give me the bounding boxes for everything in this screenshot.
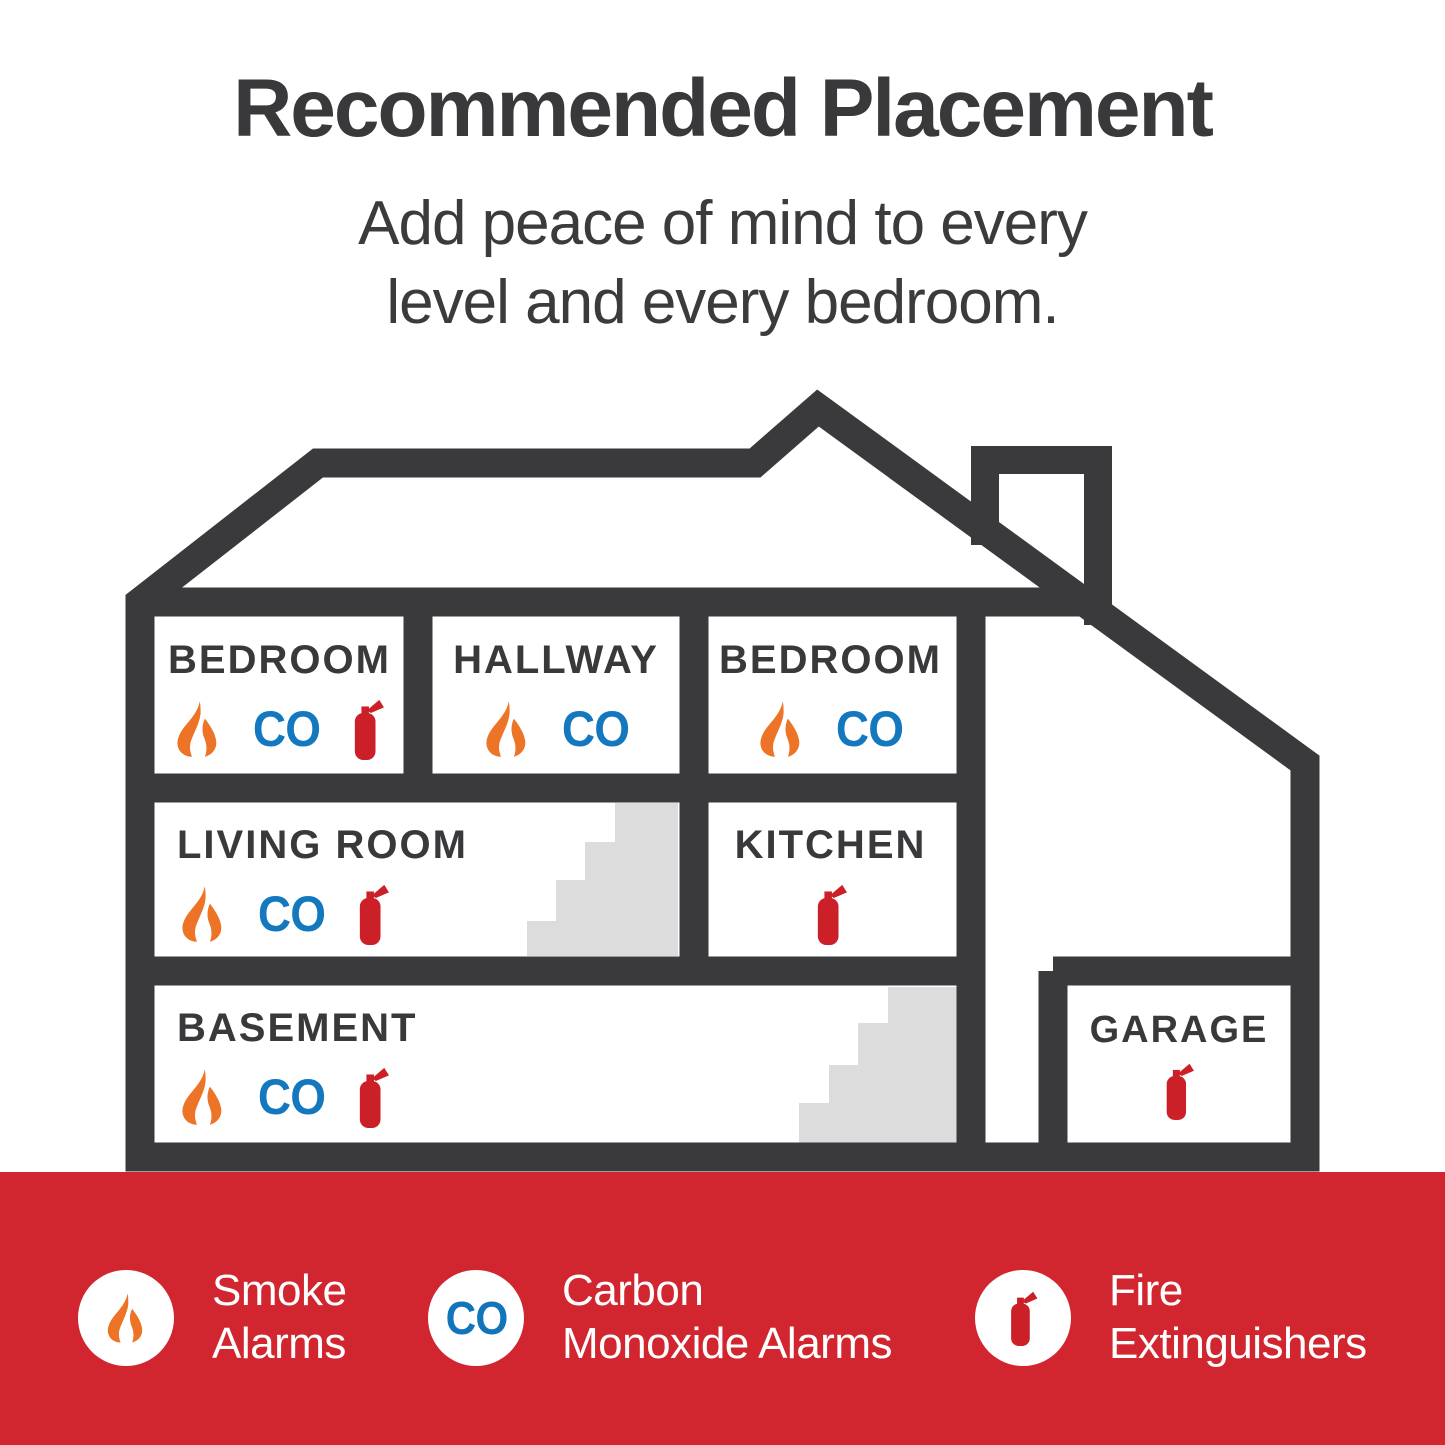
smoke-alarm-icon [177, 886, 229, 942]
co-alarm-legend-circle: CO [428, 1270, 524, 1366]
fire-extinguisher-icon [1006, 1290, 1040, 1346]
room-bedroom-upper-left: BEDROOM CO [155, 618, 404, 774]
co-alarm-badge: CO [445, 1291, 507, 1345]
device-icons [1161, 1060, 1197, 1122]
fire-extinguisher-icon [812, 883, 850, 945]
room-basement: BASEMENT CO [155, 986, 795, 1142]
co-alarm-badge: CO [561, 704, 628, 754]
room-label: KITCHEN [735, 823, 927, 867]
room-label: LIVING ROOM [177, 823, 468, 867]
fire-extinguisher-icon [349, 698, 387, 760]
device-icons: CO [177, 1066, 392, 1128]
fire-extinguisher-icon [354, 1066, 392, 1128]
stairs-upper [527, 803, 678, 956]
room-kitchen: KITCHEN [708, 803, 953, 956]
fire-extinguisher-icon [354, 883, 392, 945]
legend-co-alarms: CO Carbon Monoxide Alarms [428, 1265, 892, 1371]
smoke-alarm-icon [103, 1293, 149, 1343]
smoke-alarm-icon [481, 701, 533, 757]
room-label: BEDROOM [168, 638, 391, 682]
device-icons: CO [172, 698, 387, 760]
co-alarm-badge: CO [258, 1072, 325, 1122]
legend-label: Fire Extinguishers [1109, 1265, 1367, 1371]
legend-label: Smoke Alarms [212, 1265, 346, 1371]
device-icons: CO [177, 883, 392, 945]
legend-smoke-alarms: Smoke Alarms [78, 1265, 346, 1371]
page-root: Recommended Placement Add peace of mind … [0, 0, 1445, 1445]
room-label: BASEMENT [177, 1006, 417, 1050]
legend-fire-extinguishers: Fire Extinguishers [975, 1265, 1367, 1371]
room-garage: GARAGE [1068, 988, 1290, 1142]
co-alarm-badge: CO [253, 704, 320, 754]
stairs-lower [799, 987, 958, 1143]
smoke-alarm-icon [755, 701, 807, 757]
fire-extinguisher-legend-circle [975, 1270, 1071, 1366]
room-living-room: LIVING ROOM CO [155, 803, 527, 956]
room-label: BEDROOM [719, 638, 942, 682]
device-icons [812, 883, 850, 945]
room-hallway: HALLWAY CO [433, 618, 679, 774]
smoke-alarm-legend-circle [78, 1270, 174, 1366]
co-alarm-badge: CO [836, 704, 903, 754]
co-alarm-badge: CO [258, 889, 325, 939]
fire-extinguisher-icon [1161, 1062, 1197, 1120]
room-bedroom-upper-right: BEDROOM CO [708, 618, 953, 774]
smoke-alarm-icon [172, 701, 224, 757]
device-icons: CO [755, 698, 906, 760]
room-label: HALLWAY [453, 638, 659, 682]
legend-label: Carbon Monoxide Alarms [562, 1265, 892, 1371]
device-icons: CO [481, 698, 632, 760]
room-label: GARAGE [1090, 1008, 1269, 1052]
smoke-alarm-icon [177, 1069, 229, 1125]
